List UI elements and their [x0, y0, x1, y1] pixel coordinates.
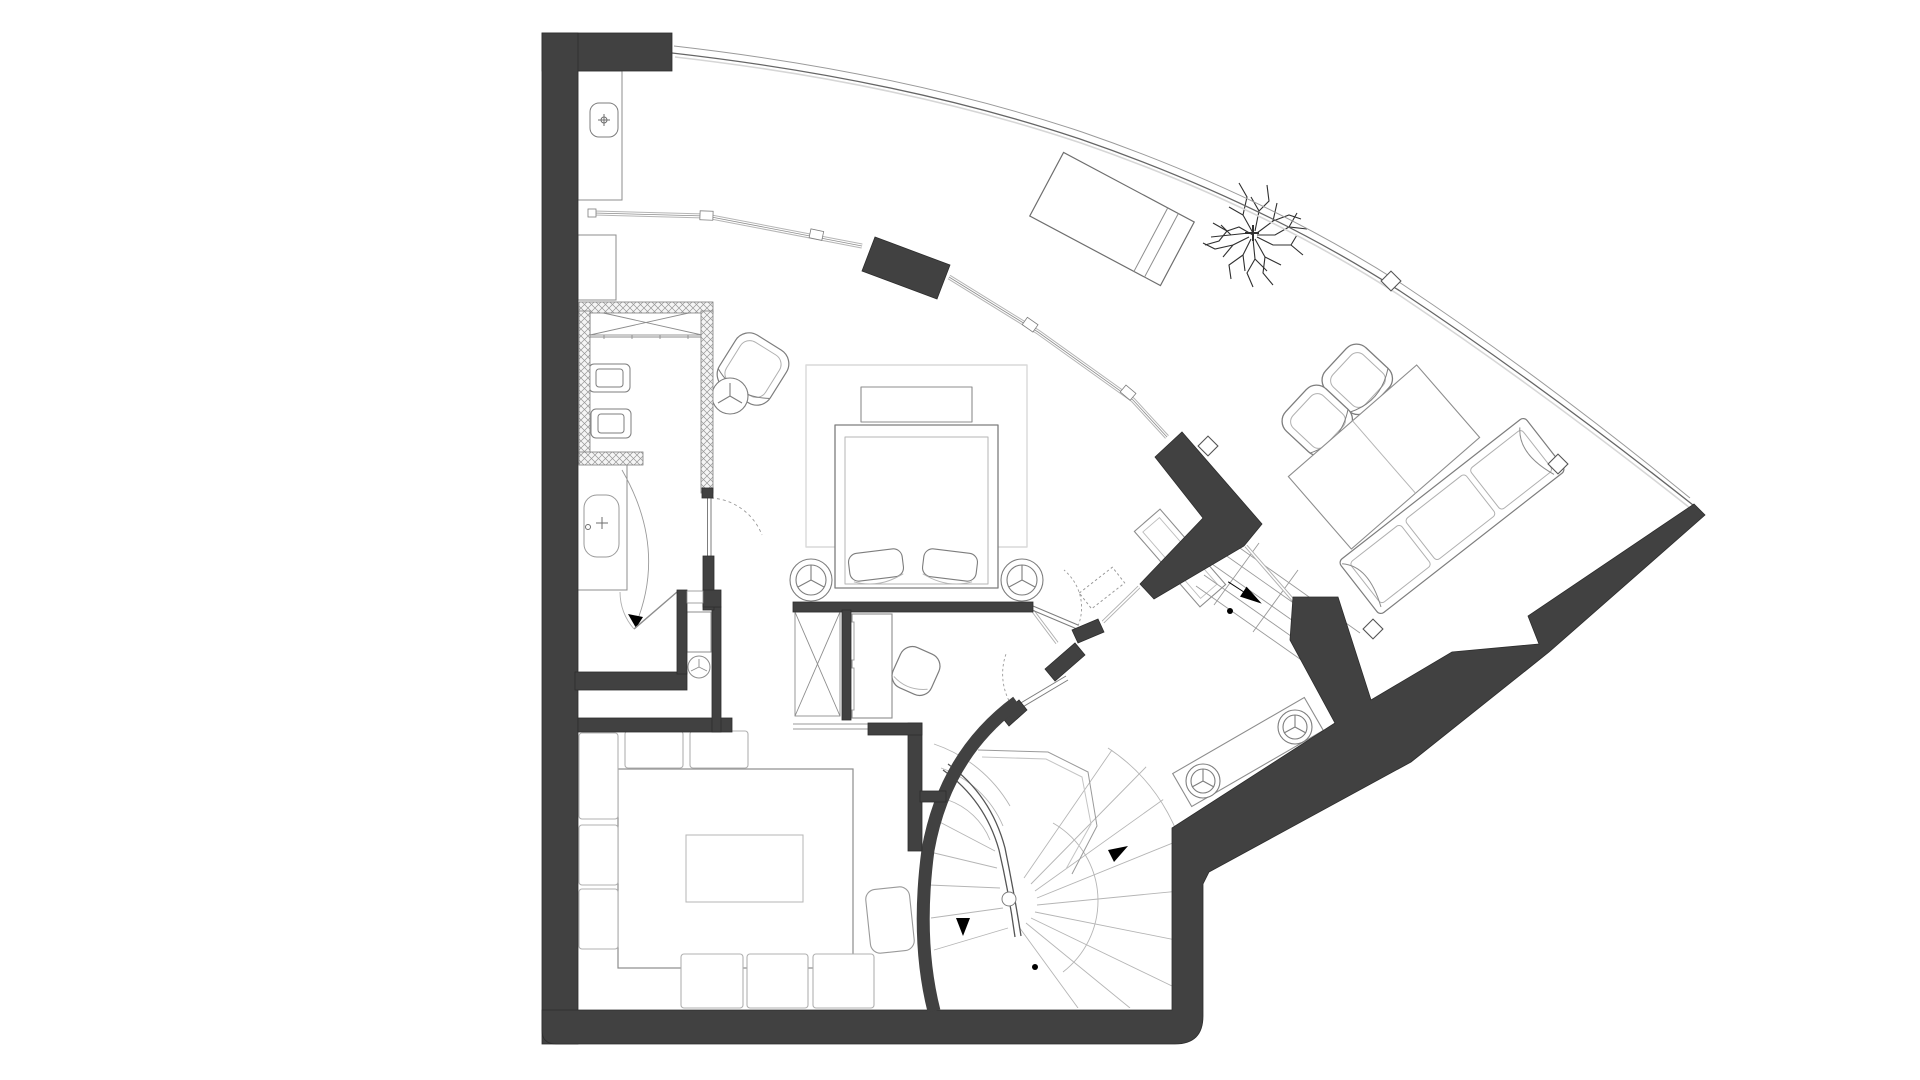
dining-chair-right — [865, 886, 915, 954]
desk-chair — [888, 642, 944, 699]
wall-wc-bottom — [575, 672, 687, 690]
counter — [578, 71, 622, 200]
pier-terrace — [862, 237, 950, 299]
hall-stool-1 — [1186, 764, 1220, 798]
base-cabinet — [578, 235, 616, 300]
wall-stair-straight — [908, 723, 922, 851]
ramp-start-dot — [1227, 608, 1233, 614]
wall-niche-top — [703, 590, 721, 607]
sitting-corner — [711, 327, 795, 414]
wall-left — [542, 33, 578, 1044]
dining-table — [618, 769, 853, 968]
wall-wc-right — [677, 590, 687, 674]
floor-plan-page — [0, 0, 1920, 1080]
double-cooktop — [589, 364, 631, 438]
pier-stub-bedroom — [1072, 619, 1104, 643]
side-table-left — [790, 559, 832, 601]
built-in-desk — [852, 614, 892, 718]
wall-niche-right — [712, 607, 721, 732]
threshold — [793, 724, 868, 729]
kitchen-door — [708, 498, 763, 556]
dressing-niche — [687, 612, 711, 678]
wall-stair-stub-left — [868, 723, 922, 735]
dashed-overhead-shelf — [1079, 567, 1124, 609]
column-marker-2 — [1381, 271, 1401, 291]
headboard-bench — [861, 387, 972, 422]
dining-room — [579, 731, 915, 1008]
wall-bedroom — [793, 602, 1033, 612]
stair-dot — [1032, 964, 1038, 970]
stair-treads-fan — [1019, 748, 1190, 1008]
round-side-table — [712, 378, 748, 414]
bath-arrow — [628, 614, 643, 628]
wall-stair-tee — [920, 791, 946, 802]
bathroom — [575, 463, 649, 628]
wall-study — [842, 610, 851, 720]
bedroom — [790, 365, 1125, 609]
facade-curve-outer — [674, 46, 1690, 498]
stair-down-arrow — [956, 918, 970, 936]
wall-door-jamb — [702, 488, 713, 498]
wall-dining-top — [578, 718, 732, 732]
newel-post — [1002, 892, 1016, 906]
column-marker-4 — [1363, 619, 1383, 639]
wall-stair-curve — [923, 702, 1017, 1011]
wall-niche-white — [687, 591, 703, 603]
stair-up-arrow — [1108, 846, 1128, 862]
pier-zigzag — [1045, 643, 1085, 681]
floor-plan-drawing — [0, 0, 1920, 1080]
wc — [620, 592, 677, 629]
hall-stool-2 — [1278, 710, 1312, 744]
column-marker-1 — [1198, 436, 1218, 456]
tree — [1203, 183, 1307, 287]
lounge — [1276, 338, 1566, 615]
kitchen-galley — [578, 71, 702, 438]
study-nook — [849, 614, 944, 718]
x-brace-wardrobe-study — [795, 612, 840, 716]
side-table-right — [1001, 559, 1043, 601]
x-brace-wardrobe — [590, 310, 702, 339]
spiral-staircase — [929, 744, 1190, 1008]
